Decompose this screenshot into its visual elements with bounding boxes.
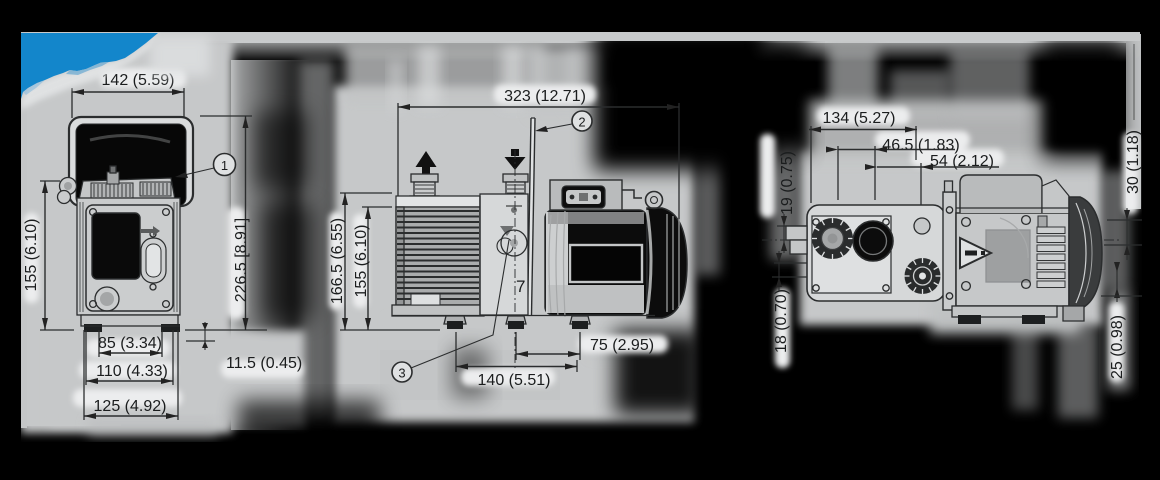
svg-text:85 (3.34): 85 (3.34) xyxy=(98,335,162,352)
svg-text:166.5 (6.55): 166.5 (6.55) xyxy=(329,218,346,304)
svg-text:7: 7 xyxy=(516,277,525,296)
svg-text:30 (1.18): 30 (1.18) xyxy=(1125,130,1142,194)
svg-text:11.5 (0.45): 11.5 (0.45) xyxy=(226,355,302,372)
svg-text:323 (12.71): 323 (12.71) xyxy=(504,88,586,105)
svg-text:25 (0.98): 25 (0.98) xyxy=(1109,315,1126,379)
svg-text:46.5 (1.83): 46.5 (1.83) xyxy=(882,137,959,154)
svg-text:134 (5.27): 134 (5.27) xyxy=(823,110,896,127)
svg-text:125 (4.92): 125 (4.92) xyxy=(94,398,167,415)
svg-text:155 (6.10): 155 (6.10) xyxy=(353,225,370,298)
svg-text:18 (0.70): 18 (0.70) xyxy=(773,289,790,353)
svg-text:1: 1 xyxy=(221,158,228,173)
svg-text:3: 3 xyxy=(398,366,405,381)
svg-text:140 (5.51): 140 (5.51) xyxy=(478,372,551,389)
svg-text:226.5 [8.91]: 226.5 [8.91] xyxy=(233,218,250,303)
svg-text:110 (4.33): 110 (4.33) xyxy=(96,363,168,380)
svg-text:19 (0.75): 19 (0.75) xyxy=(779,151,796,215)
svg-text:2: 2 xyxy=(578,115,585,130)
svg-text:75 (2.95): 75 (2.95) xyxy=(590,337,654,354)
svg-text:155 (6.10): 155 (6.10) xyxy=(23,219,40,292)
